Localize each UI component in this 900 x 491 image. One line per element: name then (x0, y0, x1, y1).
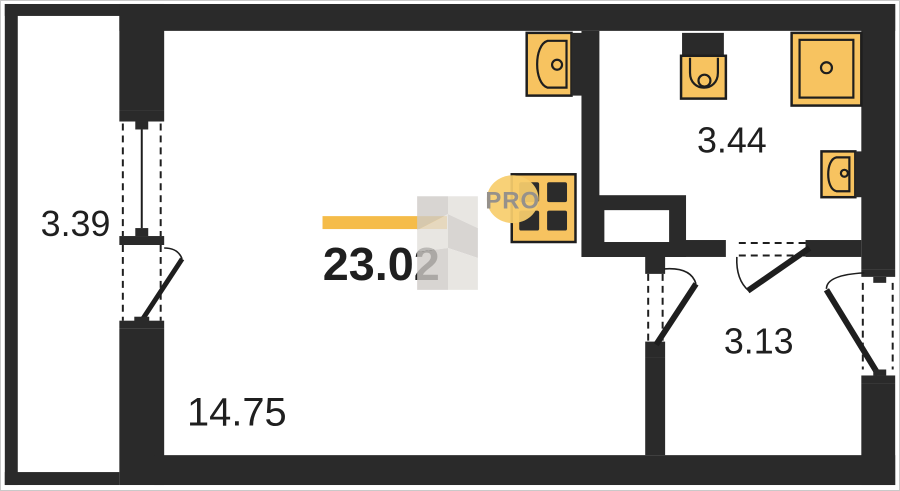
hallway-area-label: 3.13 (724, 322, 794, 362)
balcony-window (119, 111, 164, 245)
interior-door (648, 269, 696, 345)
toilet-icon (681, 33, 726, 99)
living-area-label: 14.75 (187, 390, 287, 434)
bathroom-door (737, 243, 810, 291)
washbasin-icon (821, 151, 862, 197)
floor-plan-viewer: 3.39 14.75 23.02 3.44 3.13 PRO (0, 0, 900, 491)
balcony-area-label: 3.39 (41, 204, 111, 244)
vent-shaft-hole (604, 210, 669, 242)
shower-icon (792, 33, 862, 106)
watermark-pro-label: PRO (485, 188, 540, 215)
bathroom-area-label: 3.44 (697, 120, 767, 160)
kitchen-sink-icon (527, 33, 583, 96)
balcony-door (119, 245, 182, 329)
watermark-logo (417, 196, 478, 290)
entrance-door (826, 270, 895, 384)
floor-plan: 3.39 14.75 23.02 3.44 3.13 PRO (1, 1, 899, 490)
fixtures (512, 33, 863, 242)
